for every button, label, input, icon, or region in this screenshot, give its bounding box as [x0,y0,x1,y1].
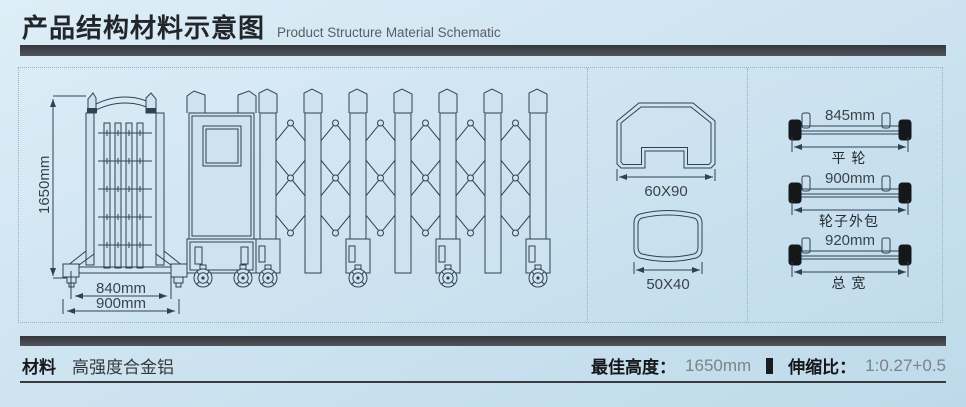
axle-wheel-outer: 900mm 轮子外包 [789,170,911,229]
gate-structure-drawing: 1650mm 840mm 900mm [19,68,586,322]
profile-60x90-label: 60X90 [644,183,687,200]
ratio-label: 伸缩比： [788,353,856,378]
axle-1-name-label: 平 轮 [832,150,867,166]
top-divider-bar [20,45,946,56]
size-specs: 最佳高度： 1650mm 伸缩比： 1:0.27+0.5 [591,353,946,378]
page-header: 产品结构材料示意图 Product Structure Material Sch… [22,8,501,45]
axle-3-size-label: 920mm [825,232,875,249]
bottom-divider-bar [20,336,946,346]
axle-3-name-label: 总 宽 [832,275,867,291]
spec-separator-bar [766,358,773,374]
profile-50x40: 50X40 [634,211,702,294]
axle-2-size-label: 900mm [825,170,875,187]
profile-50x40-label: 50X40 [646,276,689,293]
material-label: 材料 [22,353,56,378]
diagram-panel: 1650mm 840mm 900mm [18,67,943,323]
axle-1-size-label: 845mm [825,107,875,124]
page-subtitle: Product Structure Material Schematic [277,25,501,40]
gate-posts [256,89,550,287]
best-height-value: 1650mm [685,356,751,376]
best-height-label: 最佳高度： [591,353,676,378]
page-title: 产品结构材料示意图 [22,8,265,45]
material-value: 高强度合金铝 [72,353,174,378]
ratio-value: 1:0.27+0.5 [865,356,946,376]
material-spec: 材料 高强度合金铝 [22,353,174,378]
gate-front-view [63,93,187,287]
axle-widths-drawing: 845mm 平 轮 900mm 轮 [748,68,944,322]
axle-flat-wheel: 845mm 平 轮 [789,107,911,166]
axle-total-width: 920mm 总 宽 [789,232,911,291]
axle-2-name-label: 轮子外包 [819,213,879,229]
profile-sections-drawing: 60X90 50X40 [588,68,747,322]
profile-60x90: 60X90 [617,103,715,200]
gate-height-label: 1650mm [36,156,53,214]
schematic-page: 产品结构材料示意图 Product Structure Material Sch… [0,0,966,407]
motor-head-unit [187,91,256,287]
footer-rule [20,381,946,383]
gate-outer-width-label: 900mm [96,295,146,312]
